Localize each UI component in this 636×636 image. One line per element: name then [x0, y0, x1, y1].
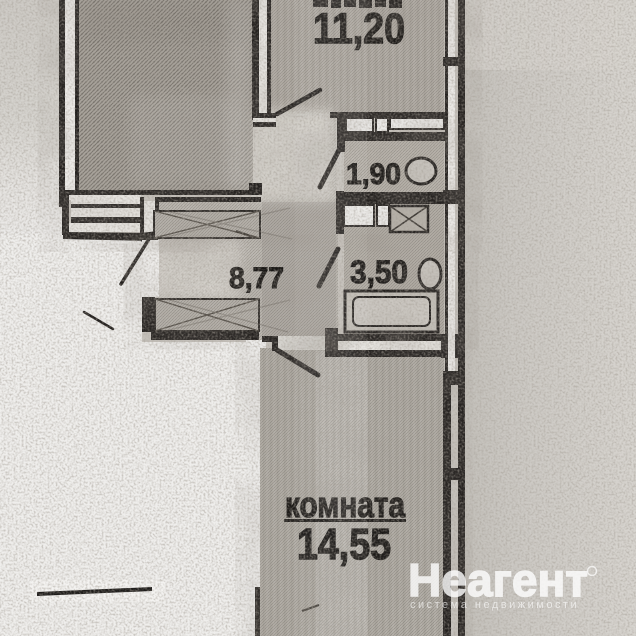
svg-text:система недвижимости: система недвижимости [410, 599, 579, 611]
